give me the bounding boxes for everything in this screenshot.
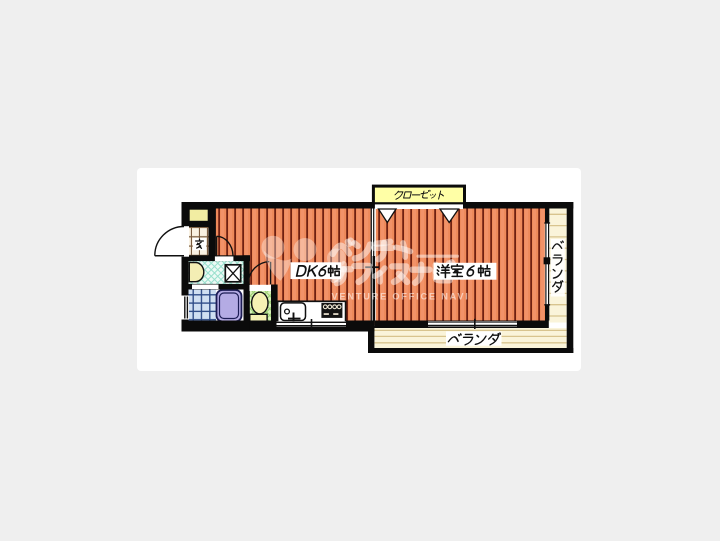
svg-text:VENTURE OFFICE NAVI: VENTURE OFFICE NAVI <box>332 291 470 301</box>
